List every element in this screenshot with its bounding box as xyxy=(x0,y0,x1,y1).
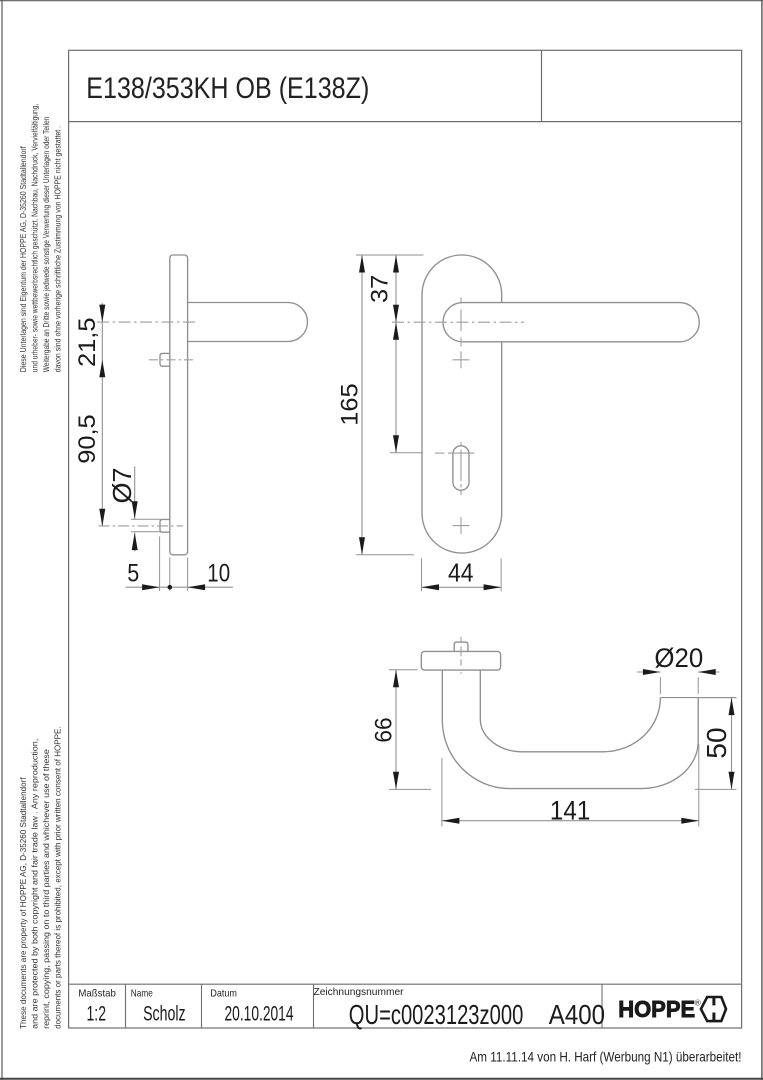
svg-text:165: 165 xyxy=(337,383,364,425)
svg-text:10: 10 xyxy=(207,559,230,587)
svg-text:A400: A400 xyxy=(549,999,605,1030)
svg-text:50: 50 xyxy=(701,727,732,758)
svg-text:These documents are property o: These documents are property of HOPPE AG… xyxy=(19,777,28,1029)
svg-text:®: ® xyxy=(695,999,701,1008)
svg-text:37: 37 xyxy=(366,275,393,303)
svg-text:Datum: Datum xyxy=(210,988,237,1000)
svg-text:Weitergabe an Dritte sowie jed: Weitergabe an Dritte sowie jedwede sonst… xyxy=(42,116,51,372)
svg-text:documents or parts thereof is: documents or parts thereof is prohibited… xyxy=(54,726,63,1029)
svg-text:Ø7: Ø7 xyxy=(107,468,137,504)
svg-text:1:2: 1:2 xyxy=(87,1003,107,1026)
svg-text:und urheber- sowie wettbewerbs: und urheber- sowie wettbewerbsrechtlich … xyxy=(30,104,39,373)
svg-text:21,5: 21,5 xyxy=(74,318,101,368)
svg-text:and are protected by both copy: and are protected by both copyright and … xyxy=(30,739,39,1029)
svg-text:QU=c0023123z000: QU=c0023123z000 xyxy=(349,999,524,1030)
svg-text:Name: Name xyxy=(131,988,153,1000)
svg-text:E138/353KH OB (E138Z): E138/353KH OB (E138Z) xyxy=(86,72,369,105)
svg-text:5: 5 xyxy=(127,559,139,587)
svg-text:Scholz: Scholz xyxy=(143,1003,186,1026)
svg-text:90,5: 90,5 xyxy=(74,414,101,464)
svg-text:20.10.2014: 20.10.2014 xyxy=(225,1003,294,1026)
svg-text:Am 11.11.14 von H. Harf (Werbu: Am 11.11.14 von H. Harf (Werbung N1) übe… xyxy=(470,1049,742,1065)
svg-text:reprint, copying, passing on t: reprint, copying, passing on to third pa… xyxy=(42,749,51,1029)
svg-text:davon sind ohne vorherige schr: davon sind ohne vorherige schriftliche Z… xyxy=(54,126,63,372)
svg-text:Zeichnungsnummer: Zeichnungsnummer xyxy=(314,986,404,998)
svg-text:66: 66 xyxy=(371,717,398,742)
svg-text:HOPPE: HOPPE xyxy=(618,996,695,1022)
svg-text:Maßstab: Maßstab xyxy=(78,988,116,1000)
svg-text:44: 44 xyxy=(448,559,474,587)
svg-text:141: 141 xyxy=(550,796,590,826)
svg-text:Diese Unterlagen sind Eigentum: Diese Unterlagen sind Eigentum der HOPPE… xyxy=(19,146,28,373)
svg-text:Ø20: Ø20 xyxy=(654,643,703,673)
